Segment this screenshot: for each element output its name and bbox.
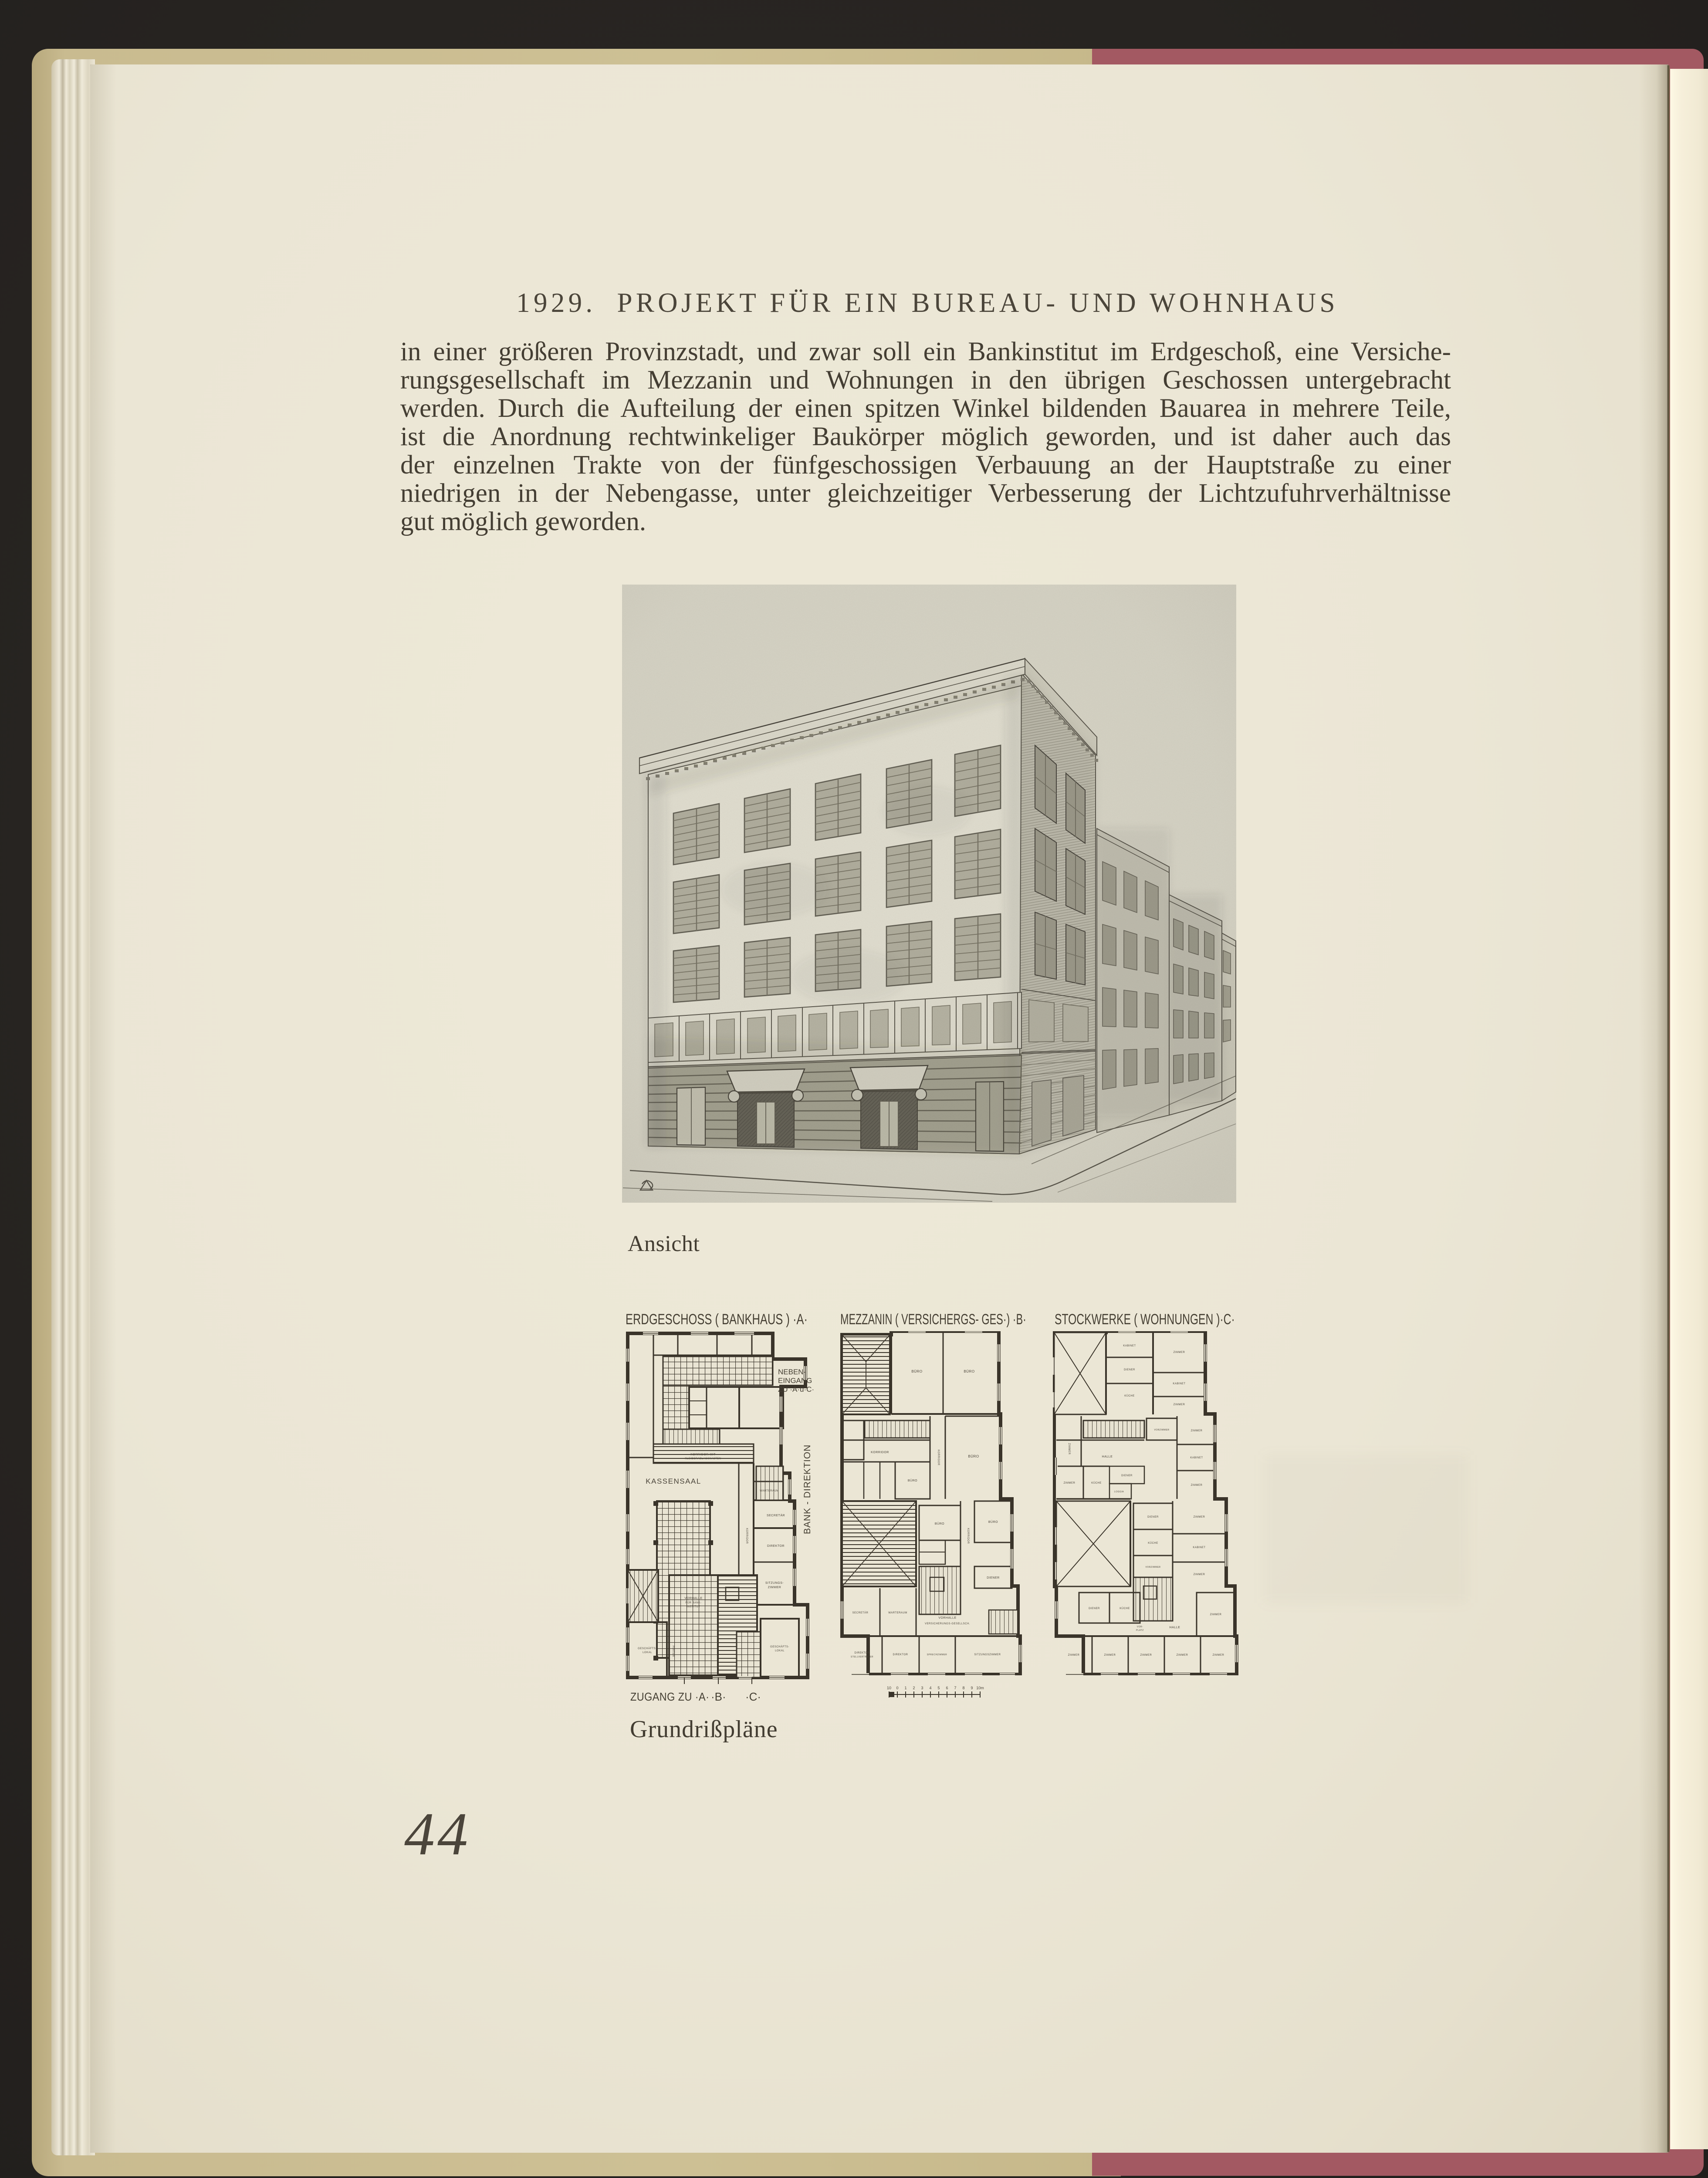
svg-text:ZIMMER: ZIMMER (1174, 1404, 1185, 1406)
svg-text:KASSENSAAL: KASSENSAAL (646, 1477, 701, 1485)
svg-text:BÜRO: BÜRO (935, 1522, 944, 1525)
svg-text:BÜRO: BÜRO (908, 1479, 917, 1482)
svg-text:SECRETÄR: SECRETÄR (767, 1514, 785, 1517)
svg-text:KORRIDOR: KORRIDOR (871, 1451, 889, 1454)
svg-text:BÜRO: BÜRO (911, 1370, 922, 1373)
svg-text:VORZIMMER: VORZIMMER (1145, 1566, 1160, 1569)
svg-text:HALLE: HALLE (1102, 1455, 1113, 1458)
svg-text:3: 3 (921, 1686, 923, 1690)
svg-text:ZIMMER: ZIMMER (1068, 1654, 1080, 1657)
svg-text:ZIMMER: ZIMMER (1191, 1430, 1203, 1432)
svg-text:DIREKTOR: DIREKTOR (767, 1545, 785, 1548)
svg-text:DIENER: DIENER (1124, 1369, 1135, 1371)
svg-text:LOKAL: LOKAL (775, 1650, 785, 1652)
svg-text:0: 0 (896, 1686, 898, 1690)
svg-text:ZIMMER: ZIMMER (1174, 1351, 1185, 1354)
svg-text:4: 4 (929, 1686, 931, 1690)
svg-text:KORRIDOR: KORRIDOR (967, 1528, 969, 1544)
svg-text:ZIMMER: ZIMMER (1194, 1573, 1205, 1576)
svg-text:ZIMMER: ZIMMER (1068, 1443, 1070, 1455)
svg-text:PLATZ: PLATZ (1136, 1629, 1144, 1632)
svg-text:10m: 10m (976, 1686, 984, 1690)
svg-text:8: 8 (962, 1686, 964, 1690)
svg-text:STELLVERTRETER: STELLVERTRETER (851, 1656, 873, 1658)
svg-text:VORHALLE: VORHALLE (684, 1597, 702, 1600)
svg-text:5: 5 (937, 1686, 940, 1690)
svg-text:PORTIER: PORTIER (672, 1646, 674, 1657)
svg-text:SITZUNGS-: SITZUNGS- (765, 1582, 784, 1585)
svg-text:KÜCHE: KÜCHE (1120, 1607, 1130, 1610)
svg-text:BÜRO: BÜRO (968, 1454, 979, 1458)
svg-text:KÜCHE: KÜCHE (1148, 1542, 1158, 1545)
svg-text:KABINET: KABINET (1193, 1546, 1205, 1549)
svg-text:KABINET: KABINET (1123, 1345, 1136, 1347)
svg-text:HALLE: HALLE (1170, 1626, 1180, 1629)
svg-text:DIENER: DIENER (1089, 1607, 1100, 1610)
svg-text:DIREKTOR: DIREKTOR (855, 1652, 870, 1654)
svg-text:ZIMMER: ZIMMER (1213, 1654, 1224, 1657)
svg-text:KORRIDOR: KORRIDOR (937, 1450, 940, 1466)
svg-text:VORHALLE: VORHALLE (938, 1617, 956, 1620)
svg-text:KÜCHE: KÜCHE (1091, 1481, 1102, 1485)
svg-text:ZIMMER: ZIMMER (1191, 1484, 1203, 1487)
svg-text:9: 9 (971, 1686, 973, 1690)
svg-text:VOR-: VOR- (1137, 1626, 1143, 1628)
svg-text:DIREKTOR: DIREKTOR (893, 1654, 908, 1656)
svg-text:GESCHÄFTS-: GESCHÄFTS- (638, 1647, 657, 1650)
svg-text:SITZUNGSZIMMER: SITZUNGSZIMMER (974, 1654, 1001, 1656)
svg-text:ZIMMER: ZIMMER (1177, 1654, 1188, 1657)
svg-text:SECRETÄR: SECRETÄR (852, 1611, 869, 1614)
svg-text:VORZIMMER: VORZIMMER (1154, 1429, 1169, 1431)
svg-text:INSTITUT: INSTITUT (687, 1606, 700, 1608)
svg-text:ZIMMER: ZIMMER (1194, 1516, 1205, 1519)
svg-text:10: 10 (887, 1686, 891, 1690)
svg-text:ZIMMER: ZIMMER (1104, 1654, 1116, 1657)
svg-text:WARTERAUM: WARTERAUM (760, 1490, 779, 1492)
svg-text:DIENER: DIENER (987, 1576, 999, 1579)
svg-text:6: 6 (946, 1686, 948, 1690)
svg-text:DIENER: DIENER (1147, 1516, 1159, 1519)
svg-text:7: 7 (954, 1686, 956, 1690)
svg-text:BÜRO: BÜRO (988, 1520, 998, 1524)
svg-text:KABINET: KABINET (1190, 1457, 1203, 1459)
svg-text:WARTERAUM: WARTERAUM (888, 1612, 907, 1614)
svg-text:SPRECHZIMMER: SPRECHZIMMER (927, 1654, 947, 1656)
svg-text:KORRIDOR: KORRIDOR (745, 1528, 748, 1544)
svg-text:ZIMMER: ZIMMER (768, 1586, 781, 1589)
svg-text:BÜRO: BÜRO (964, 1370, 974, 1373)
svg-text:KLEIDERABLAGSKASTEN: KLEIDERABLAGSKASTEN (685, 1458, 721, 1460)
svg-text:KORRIDOR MIT: KORRIDOR MIT (690, 1453, 716, 1456)
svg-text:ZIMMER: ZIMMER (1140, 1654, 1152, 1657)
svg-text:ZIMMER: ZIMMER (1210, 1613, 1222, 1616)
svg-text:DIENER: DIENER (1121, 1475, 1133, 1477)
svg-text:VERSICHERUNGS-GESELLSCH.: VERSICHERUNGS-GESELLSCH. (925, 1623, 970, 1625)
svg-text:KABINET: KABINET (1173, 1383, 1185, 1385)
svg-text:LOGGIA: LOGGIA (1114, 1491, 1124, 1493)
svg-text:2: 2 (913, 1686, 915, 1690)
svg-text:LOKAL: LOKAL (643, 1651, 652, 1654)
svg-text:GESCHÄFTS-: GESCHÄFTS- (770, 1645, 789, 1648)
svg-text:1: 1 (904, 1686, 906, 1690)
svg-text:ZIMMER: ZIMMER (1064, 1482, 1076, 1485)
svg-text:KÜCHE: KÜCHE (1124, 1394, 1135, 1397)
svg-text:FÜR BANK-: FÜR BANK- (686, 1601, 702, 1604)
